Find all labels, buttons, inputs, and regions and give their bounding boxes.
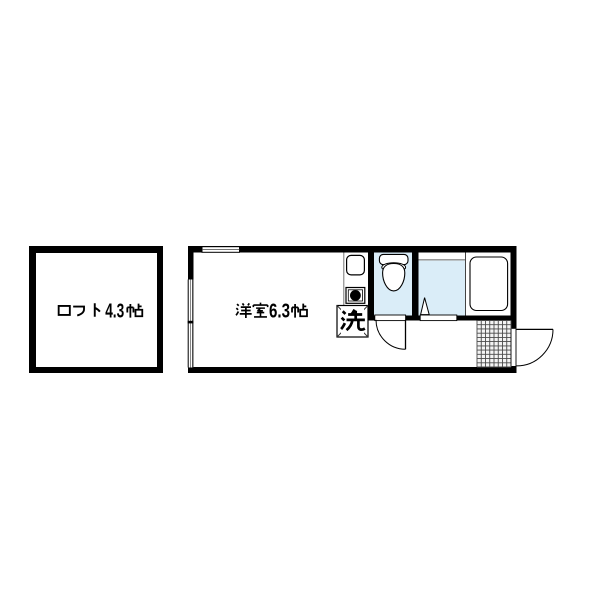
svg-text:4.3: 4.3 <box>105 301 124 323</box>
svg-text:6.3: 6.3 <box>269 301 290 323</box>
